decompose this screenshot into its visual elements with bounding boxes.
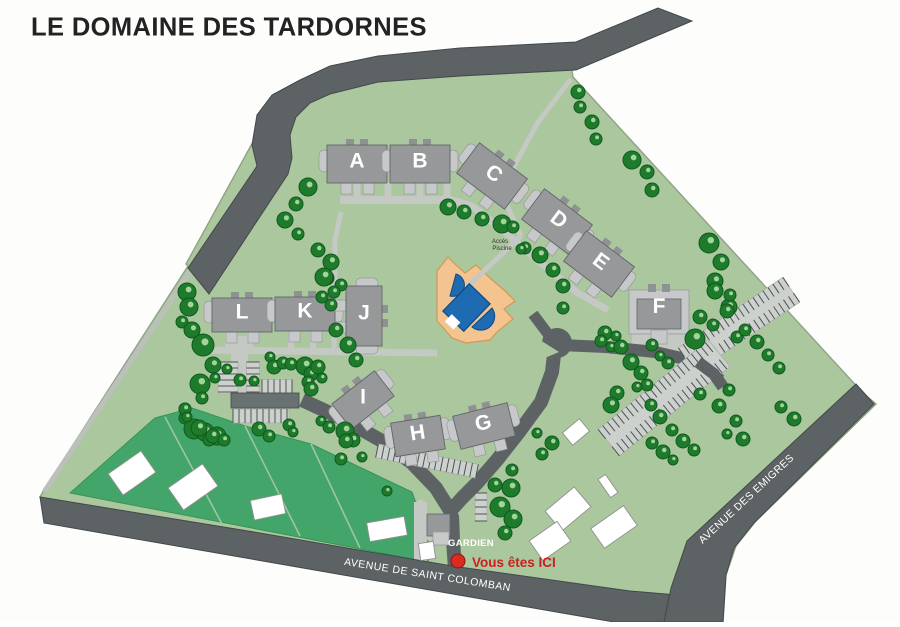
svg-text:K: K [297, 300, 312, 323]
svg-text:Accès: Accès [492, 239, 508, 245]
svg-text:L: L [236, 301, 249, 324]
svg-text:A: A [349, 150, 364, 173]
svg-text:LE DOMAINE DES TARDORNES: LE DOMAINE DES TARDORNES [31, 14, 427, 42]
svg-text:I: I [360, 386, 366, 409]
svg-text:J: J [358, 302, 370, 325]
svg-text:Piscine: Piscine [492, 246, 512, 252]
svg-text:Vous êtes ICI: Vous êtes ICI [472, 555, 556, 570]
svg-text:GARDIEN: GARDIEN [448, 538, 494, 549]
svg-text:F: F [653, 295, 666, 318]
svg-text:B: B [412, 150, 427, 173]
